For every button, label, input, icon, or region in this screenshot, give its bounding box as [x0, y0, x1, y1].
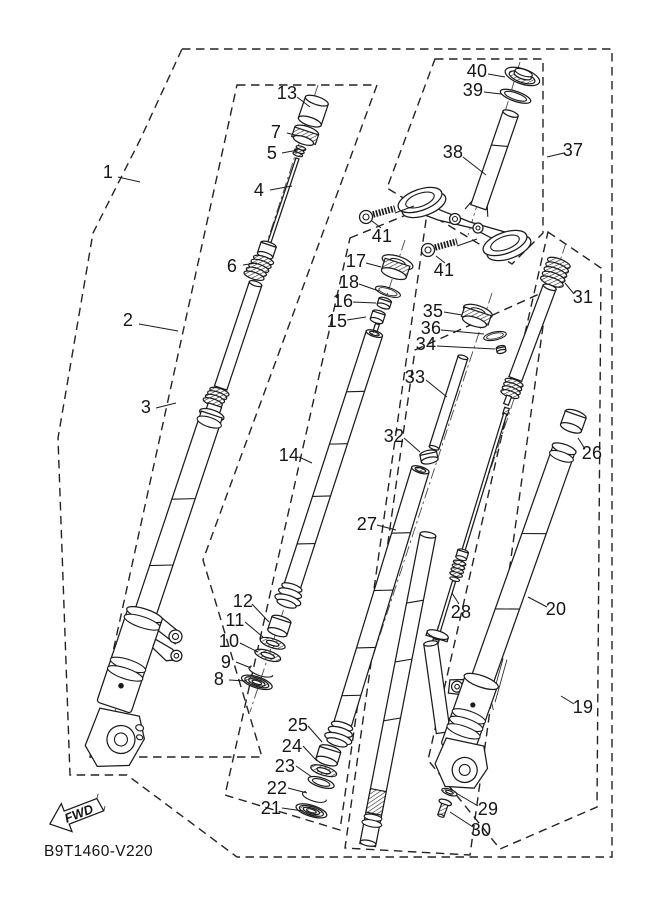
damper-cap-35	[459, 301, 494, 330]
part-label-21: 21	[261, 799, 282, 817]
part-label-19: 19	[573, 698, 594, 716]
part-label-28: 28	[451, 603, 472, 621]
fwd-label: FWD	[62, 801, 96, 826]
part-label-4: 4	[254, 181, 264, 199]
part-label-14: 14	[279, 446, 300, 464]
clamp-bolt-41b	[422, 239, 478, 257]
part-label-27: 27	[357, 515, 378, 533]
fwd-arrow-icon: FWD	[44, 789, 109, 838]
part-label-41a: 41	[372, 227, 393, 245]
part-label-5: 5	[267, 144, 277, 162]
cartridge-assembly	[495, 255, 572, 409]
part-label-39: 39	[463, 81, 484, 99]
part-label-20: 20	[546, 600, 567, 618]
part-label-6: 6	[227, 257, 237, 275]
part-label-41b: 41	[434, 261, 455, 279]
part-label-31: 31	[573, 288, 594, 306]
part-label-25: 25	[288, 716, 309, 734]
part-label-1: 1	[103, 163, 113, 181]
part-label-17: 17	[346, 252, 367, 270]
part-label-7: 7	[271, 123, 281, 141]
triple-clamp	[395, 182, 534, 267]
nut-34	[496, 345, 506, 354]
diagram-code: B9T1460-V220	[44, 843, 153, 861]
part-label-23: 23	[275, 757, 296, 775]
part-label-22: 22	[267, 779, 288, 797]
part-label-13: 13	[277, 84, 298, 102]
damper-rod-lower-tube	[423, 640, 450, 734]
part-label-12: 12	[233, 592, 254, 610]
part-label-18: 18	[339, 273, 360, 291]
part-label-11: 11	[225, 611, 244, 629]
part-label-15: 15	[327, 312, 348, 330]
part-label-8: 8	[214, 670, 224, 688]
part-label-32: 32	[384, 427, 405, 445]
o-ring-36	[483, 330, 507, 343]
part-label-3: 3	[141, 398, 151, 416]
part-label-29: 29	[478, 800, 499, 818]
part-label-10: 10	[219, 632, 240, 650]
damper-rod-tube-33	[429, 354, 469, 451]
part-label-26: 26	[582, 444, 603, 462]
part-label-37: 37	[563, 141, 584, 159]
part-label-16: 16	[333, 292, 354, 310]
part-label-9: 9	[221, 653, 231, 671]
part-label-40: 40	[467, 62, 488, 80]
right-fork-leg	[406, 401, 610, 826]
part-label-33: 33	[405, 368, 426, 386]
part-label-38: 38	[443, 143, 464, 161]
part-label-36: 36	[421, 319, 442, 337]
part-label-2: 2	[123, 311, 133, 329]
parts-diagram-page: FWD 1 2 3 4 5 6 7 8 9 10 11 12 13 14 15 …	[0, 0, 662, 914]
diagram-canvas: FWD	[0, 0, 662, 914]
cap-32	[419, 449, 438, 466]
part-label-24: 24	[282, 737, 303, 755]
damper-body-tube	[358, 530, 439, 848]
part-label-30: 30	[471, 821, 492, 839]
